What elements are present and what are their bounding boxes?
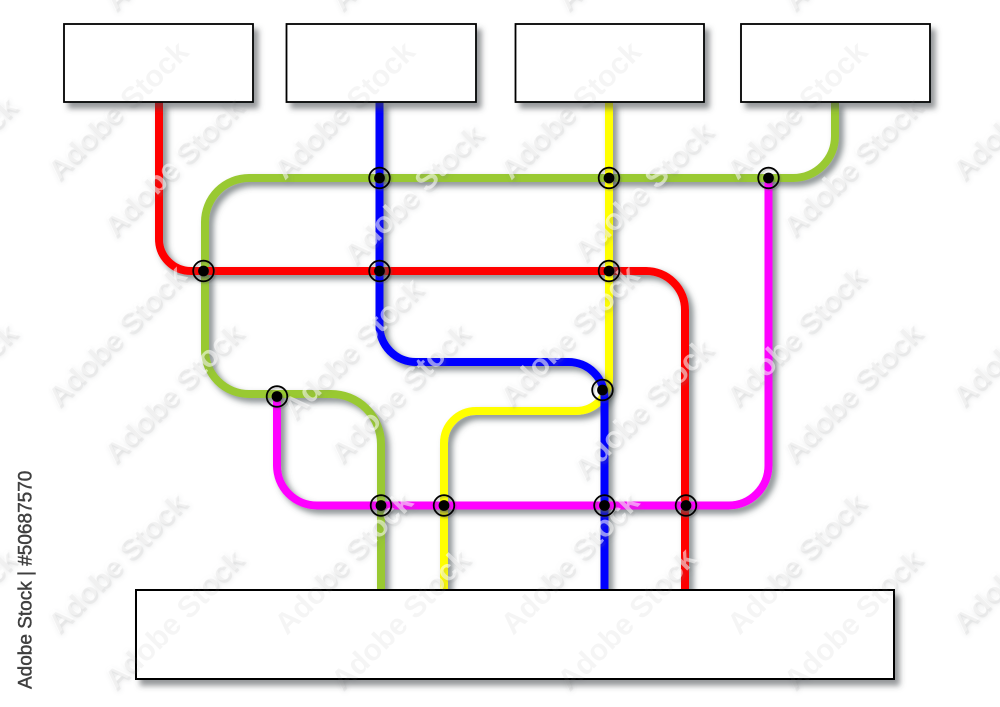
svg-text:Adobe Stock | #50687570: Adobe Stock | #50687570 xyxy=(16,471,37,689)
